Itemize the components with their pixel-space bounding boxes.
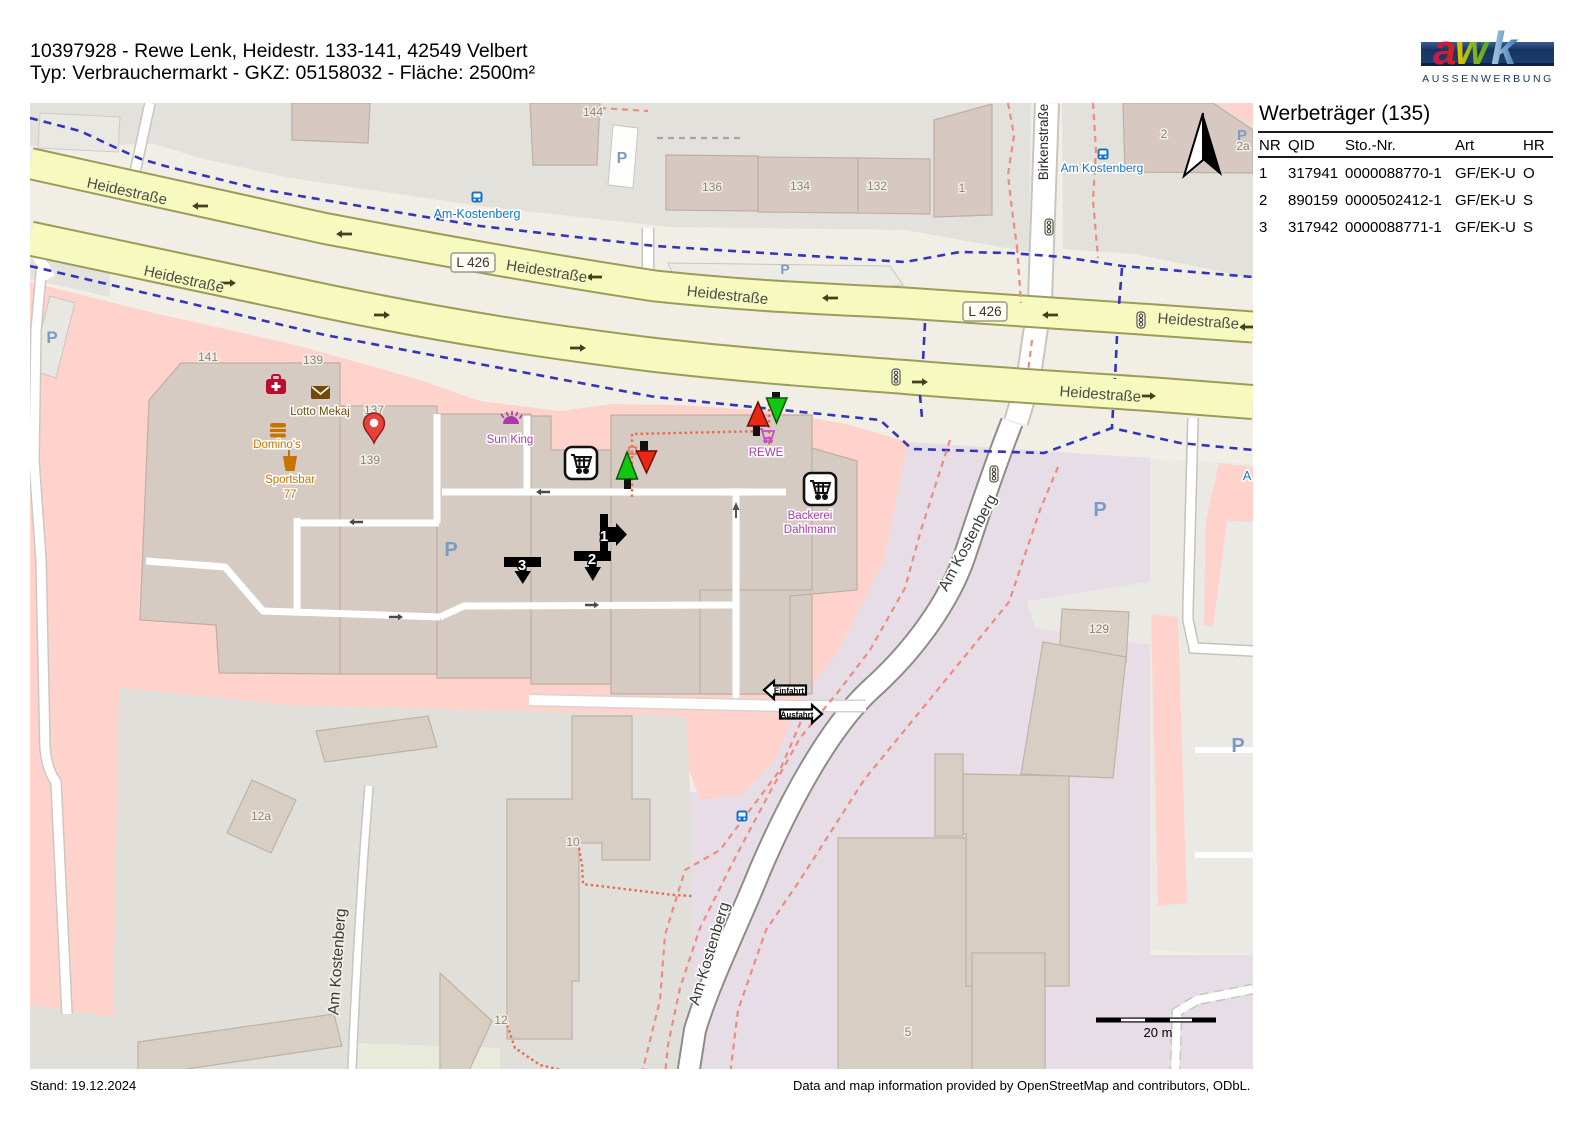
svg-text:P: P bbox=[1231, 735, 1244, 757]
svg-text:P: P bbox=[444, 539, 457, 561]
svg-text:10: 10 bbox=[566, 835, 580, 849]
svg-text:Domino's: Domino's bbox=[253, 439, 301, 451]
svg-text:Ausfahrt: Ausfahrt bbox=[781, 711, 814, 720]
svg-text:k: k bbox=[1491, 22, 1519, 74]
svg-text:5: 5 bbox=[905, 1025, 912, 1039]
svg-text:12a: 12a bbox=[251, 809, 271, 823]
svg-text:Sun King: Sun King bbox=[487, 434, 534, 446]
svg-text:P: P bbox=[1093, 499, 1106, 521]
svg-text:Birkenstraße: Birkenstraße bbox=[1036, 104, 1051, 181]
svg-text:141: 141 bbox=[198, 350, 218, 364]
svg-text:AUSSENWERBUNG: AUSSENWERBUNG bbox=[1422, 73, 1554, 85]
svg-text:P: P bbox=[46, 328, 57, 347]
svg-text:77: 77 bbox=[284, 489, 297, 501]
svg-text:136: 136 bbox=[702, 180, 722, 194]
svg-text:L 426: L 426 bbox=[456, 255, 489, 270]
svg-text:Am Kostenberg: Am Kostenberg bbox=[1061, 161, 1144, 175]
svg-text:Sportsbar: Sportsbar bbox=[265, 474, 315, 486]
svg-text:L 426: L 426 bbox=[968, 304, 1001, 319]
svg-text:129: 129 bbox=[1089, 622, 1109, 636]
svg-text:2: 2 bbox=[588, 551, 596, 568]
svg-text:1: 1 bbox=[600, 528, 608, 545]
svg-text:Backerei: Backerei bbox=[788, 510, 833, 522]
svg-text:3: 3 bbox=[518, 557, 526, 574]
svg-text:139: 139 bbox=[303, 353, 323, 367]
svg-text:a: a bbox=[1433, 26, 1456, 73]
svg-text:144: 144 bbox=[583, 105, 603, 119]
svg-text:2: 2 bbox=[1161, 127, 1168, 141]
svg-text:12: 12 bbox=[494, 1013, 508, 1027]
svg-text:w: w bbox=[1455, 26, 1490, 73]
svg-text:Lotto Mekaj: Lotto Mekaj bbox=[290, 406, 349, 418]
svg-text:REWE: REWE bbox=[749, 447, 784, 459]
svg-text:139: 139 bbox=[360, 453, 380, 467]
svg-text:Am-Kostenberg: Am-Kostenberg bbox=[434, 207, 521, 221]
svg-text:1: 1 bbox=[959, 181, 966, 195]
svg-text:Einfahrt: Einfahrt bbox=[774, 687, 805, 696]
svg-text:134: 134 bbox=[790, 179, 810, 193]
svg-text:P: P bbox=[617, 150, 628, 167]
svg-text:P: P bbox=[780, 261, 789, 277]
svg-text:Dahlmann: Dahlmann bbox=[784, 524, 836, 536]
svg-text:132: 132 bbox=[867, 179, 887, 193]
svg-text:P: P bbox=[1237, 127, 1247, 144]
svg-text:A: A bbox=[1243, 469, 1252, 483]
svg-text:20 m: 20 m bbox=[1144, 1025, 1173, 1040]
